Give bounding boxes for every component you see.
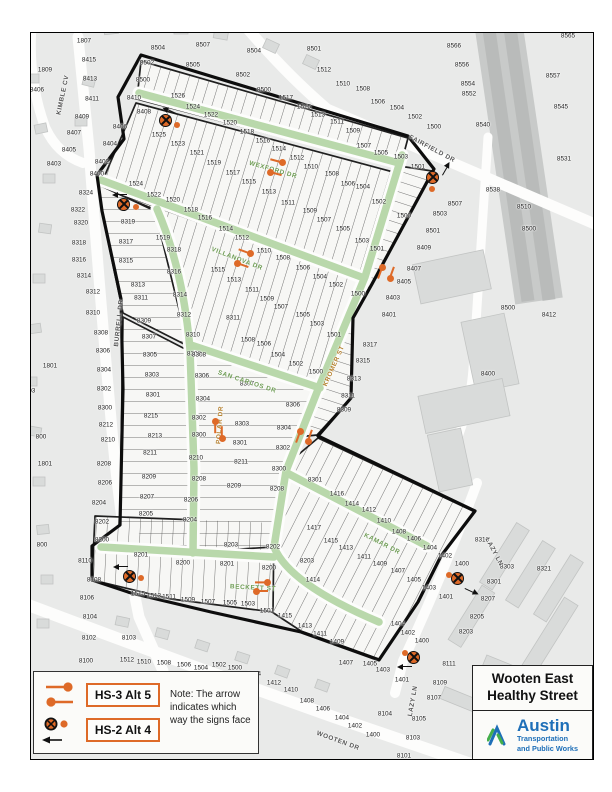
austin-logo-text: Austin Transportation and Public Works (517, 717, 578, 752)
austin-sub2: and Public Works (517, 744, 578, 753)
austin-logo: Austin Transportation and Public Works (473, 711, 592, 759)
map-page: 1807841518098413840684118410840884098406… (0, 0, 612, 792)
map-title-line1: Wooten East (492, 671, 574, 688)
austin-wordmark: Austin (517, 717, 578, 734)
hs3-label: HS-3 Alt 5 (86, 683, 160, 707)
legend-labels: HS-3 Alt 5 HS-2 Alt 4 (86, 672, 160, 753)
austin-sub1: Transportation (517, 734, 578, 743)
hs2-label: HS-2 Alt 4 (86, 718, 160, 742)
title-block: Wooten East Healthy Street Austin Transp… (472, 665, 593, 760)
map-title-line2: Healthy Street (487, 688, 578, 705)
basemap-svg (30, 32, 594, 760)
map-frame: 1807841518098413840684118410840884098406… (30, 32, 594, 760)
legend-symbols (34, 672, 86, 753)
hs2-symbol-icon (38, 713, 82, 747)
legend: HS-3 Alt 5 HS-2 Alt 4 Note: The arrow in… (33, 671, 259, 754)
austin-logo-icon (487, 722, 513, 748)
hs3-symbol-icon (38, 678, 82, 710)
legend-note: Note: The arrow indicates which way the … (160, 672, 258, 753)
map-title: Wooten East Healthy Street (473, 666, 592, 711)
